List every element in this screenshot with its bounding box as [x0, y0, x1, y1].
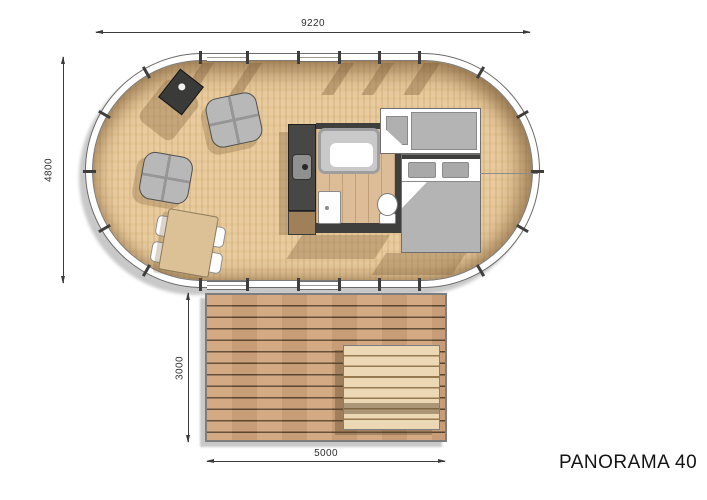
frame-post [83, 170, 96, 173]
frame-post [199, 51, 202, 64]
frame-post [418, 278, 421, 291]
frame-post [199, 278, 202, 291]
window-top-2 [299, 53, 339, 62]
frame-post [246, 278, 249, 291]
frame-post [338, 278, 341, 291]
washbasin [318, 191, 341, 224]
deck [205, 293, 447, 442]
window-bottom-2 [299, 281, 339, 290]
section-line [480, 173, 538, 174]
dimension-tent-width: 9220 [96, 18, 530, 33]
shower-tray [318, 128, 380, 174]
bed-shadow [372, 253, 466, 275]
dimension-tent-depth: 4800 [63, 57, 64, 283]
window-bottom-1 [207, 281, 248, 290]
double-bed [401, 154, 481, 253]
single-bed-mattress [411, 112, 477, 150]
kitchen-sink [292, 154, 312, 180]
dimension-deck-width: 5000 [207, 448, 445, 462]
frame-post [297, 278, 300, 291]
frame-post [418, 51, 421, 64]
armchair-lower [137, 150, 195, 206]
floor-plan-canvas: 9220 4800 [0, 0, 707, 500]
tent-outline [85, 53, 540, 288]
frame-post [297, 51, 300, 64]
dimension-tent-width-line [96, 32, 530, 33]
double-bed-pillow [442, 162, 469, 178]
single-bed [380, 108, 481, 154]
double-bed-headboard [402, 155, 480, 159]
frame-post [142, 264, 151, 277]
window-top-1 [207, 53, 248, 62]
pod-shadow [279, 132, 288, 235]
bathroom-wall-south [316, 223, 403, 233]
dimension-deck-depth: 3000 [188, 293, 189, 442]
dimension-deck-depth-line [188, 293, 189, 442]
frame-post [338, 51, 341, 64]
frame-post [516, 110, 529, 119]
double-bed-pillow [408, 162, 436, 178]
plan-title: PANORAMA 40 [559, 452, 697, 474]
frame-post [378, 278, 381, 291]
double-bed-duvet [402, 181, 480, 252]
pod-shadow-lower [286, 235, 390, 259]
frame-post [378, 51, 381, 64]
dimension-tent-depth-line [63, 57, 64, 283]
dining-table [158, 208, 219, 278]
toilet [377, 193, 398, 216]
dimension-deck-width-line [207, 461, 445, 462]
frame-post [246, 51, 249, 64]
dimension-deck-depth-label: 3000 [175, 348, 186, 388]
kitchen-cabinet [288, 211, 316, 235]
dimension-tent-width-label: 9220 [96, 18, 530, 29]
frame-post [516, 224, 529, 233]
dimension-tent-depth-label: 4800 [44, 150, 55, 190]
dimension-deck-width-label: 5000 [207, 448, 445, 459]
frame-post [476, 264, 485, 277]
picnic-table [343, 345, 440, 430]
